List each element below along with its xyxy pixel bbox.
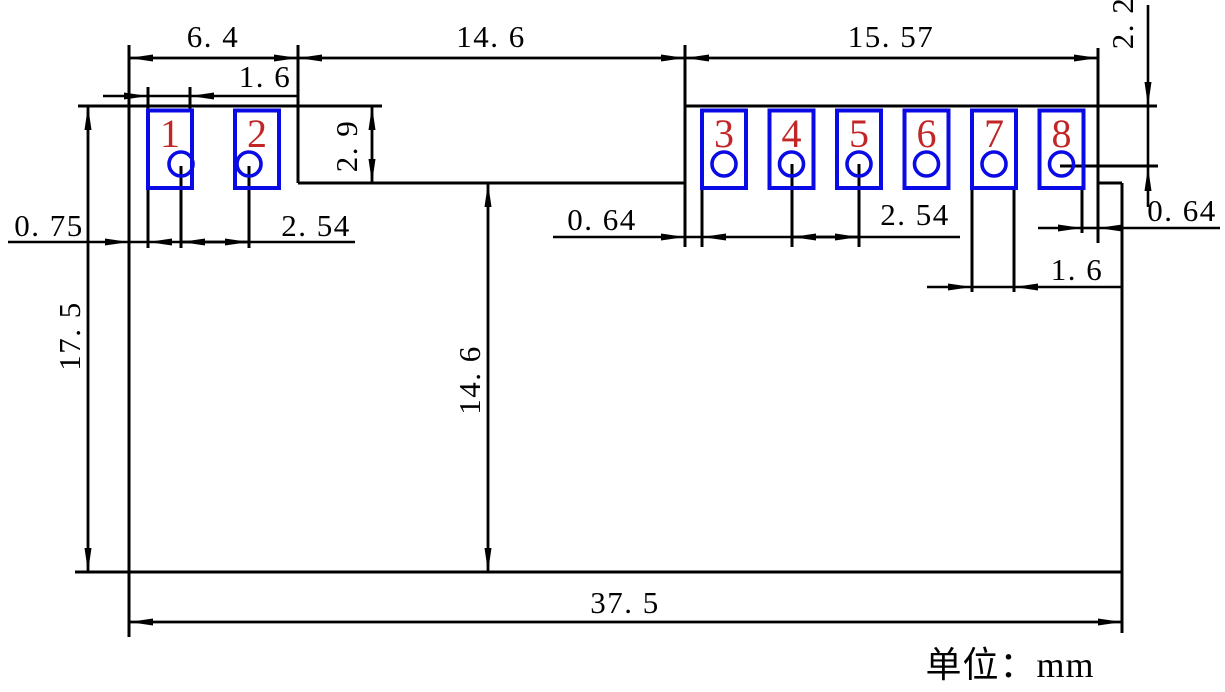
dim-left-pitch-label: 2. 54	[281, 208, 351, 243]
pad-8: 8	[1040, 111, 1084, 189]
pads-layer: 12345678	[148, 111, 1084, 189]
dim-right-block-width-label: 15. 57	[848, 19, 935, 54]
pad-number-8: 8	[1052, 111, 1072, 156]
dim-notch-to-pad3-label: 0. 64	[567, 202, 637, 237]
dim-pad7-width-label: 1. 6	[1051, 252, 1104, 287]
pad-5: 5	[837, 111, 881, 189]
pad-number-5: 5	[849, 111, 869, 156]
pad-number-1: 1	[160, 111, 180, 156]
pad-number-3: 3	[714, 111, 734, 156]
technical-drawing-page: 12345678 6. 4 14. 6 15. 57 1. 6 0. 75 2.…	[0, 0, 1225, 692]
dim-pad1-width-label: 1. 6	[239, 59, 292, 94]
dim-overall-width-label: 37. 5	[590, 585, 660, 620]
dim-notch-to-bottom-label: 14. 6	[452, 345, 487, 415]
dim-notch-width-label: 14. 6	[456, 19, 526, 54]
dimension-labels: 6. 4 14. 6 15. 57 1. 6 0. 75 2. 54 0. 64…	[14, 0, 1217, 620]
pad-number-2: 2	[247, 111, 267, 156]
pad-3: 3	[702, 111, 746, 189]
dim-notch-depth-label: 2. 9	[329, 120, 364, 173]
dim-edge-to-pad1-label: 0. 75	[14, 208, 84, 243]
module-dimension-drawing: 12345678 6. 4 14. 6 15. 57 1. 6 0. 75 2.…	[0, 0, 1225, 692]
dim-pad8-to-edge-label: 0. 64	[1147, 193, 1217, 228]
pad-7: 7	[972, 111, 1016, 189]
dim-top-to-hole8-label: 2. 2	[1105, 0, 1140, 49]
pad-number-7: 7	[984, 111, 1004, 156]
pad-number-4: 4	[782, 111, 802, 156]
pad-6: 6	[905, 111, 949, 189]
pad-2: 2	[235, 111, 279, 189]
dim-right-pitch-label: 2. 54	[880, 197, 950, 232]
dim-overall-height-label: 17. 5	[52, 301, 87, 371]
pad-number-6: 6	[917, 111, 937, 156]
unit-label: 单位：mm	[925, 645, 1094, 685]
dim-left-block-width-label: 6. 4	[187, 19, 240, 54]
pad-4: 4	[770, 111, 814, 189]
pad-1: 1	[148, 111, 193, 189]
